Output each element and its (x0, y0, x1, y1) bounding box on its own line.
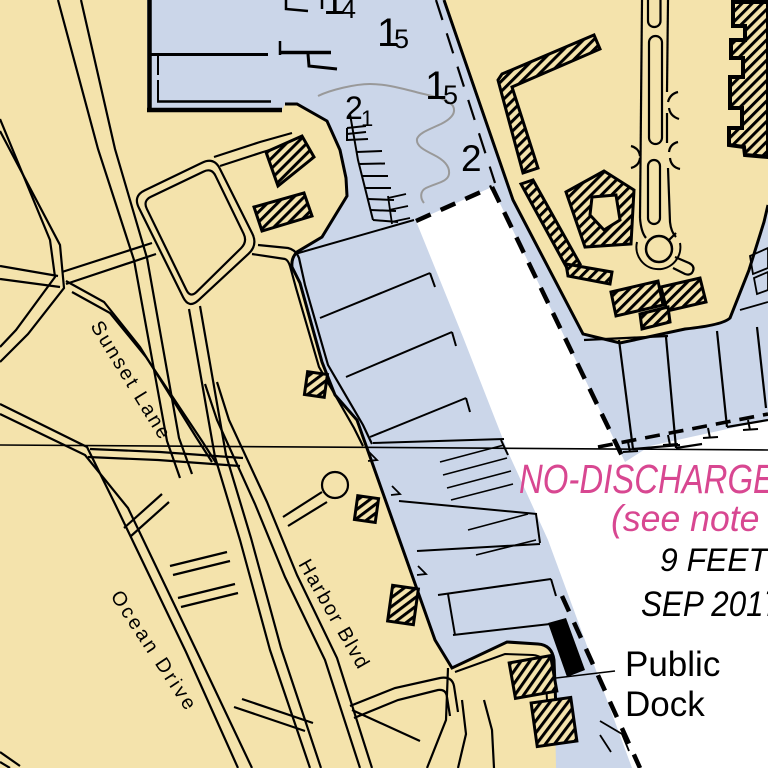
svg-text:NO-DISCHARGE: NO-DISCHARGE (519, 456, 768, 502)
svg-text:Public: Public (625, 645, 720, 684)
svg-text:9 FEET: 9 FEET (660, 542, 768, 578)
svg-text:Dock: Dock (625, 685, 705, 724)
svg-text:5: 5 (394, 24, 409, 54)
svg-text:5: 5 (443, 80, 458, 110)
svg-text:2: 2 (461, 138, 482, 179)
svg-text:SEP 2017: SEP 2017 (641, 585, 768, 624)
svg-text:1: 1 (361, 106, 373, 131)
svg-text:(see note 2): (see note 2) (611, 498, 768, 539)
svg-text:4: 4 (341, 0, 356, 24)
